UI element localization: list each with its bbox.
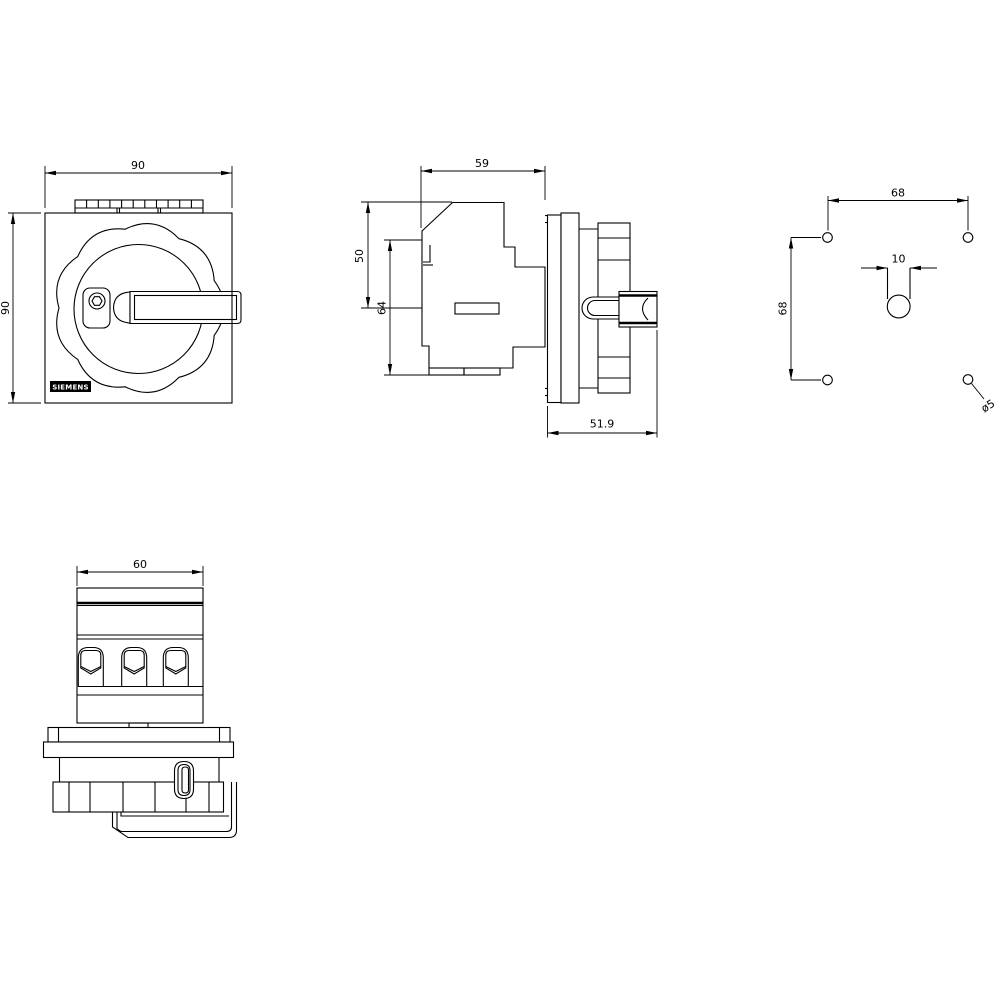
front-height-dimension: 90: [0, 213, 41, 403]
side-foot-right: [464, 368, 500, 375]
slot-width-dimension: 10: [861, 253, 937, 271]
side-width-dim-label: 59: [475, 157, 489, 170]
mounting-hole-top-right: [963, 233, 973, 243]
brand-badge: SIEMENS: [50, 381, 91, 392]
mounting-hole-top-left: [823, 233, 833, 243]
hole-diameter-label: ø5: [979, 397, 998, 415]
mounting-plate-thin: [548, 215, 562, 403]
technical-drawing-page: 90 90: [0, 0, 1000, 1000]
flange-plate-upper: [48, 728, 230, 743]
drilling-vertical-dim-label: 68: [777, 302, 790, 316]
bottom-width-dimension: 60: [77, 558, 203, 586]
terminal-strip: [75, 200, 203, 213]
front-view: 90 90: [0, 159, 241, 403]
side-upper-dim-label: 50: [353, 249, 366, 263]
side-body-outline: [422, 203, 545, 369]
center-tab: [129, 723, 148, 728]
contact-block: [77, 588, 203, 723]
padlock-shackle: [175, 762, 194, 799]
drilling-horizontal-dim-label: 68: [891, 187, 905, 200]
hole-diameter-callout: ø5: [972, 384, 998, 416]
drilling-horizontal-dimension: 68: [828, 187, 968, 231]
handle-lever: [114, 292, 242, 324]
bottom-view: 60: [44, 558, 237, 838]
mounting-hole-bottom-left: [823, 375, 833, 385]
padlock-eye-side: [582, 297, 619, 319]
knob-neck-bottom: [60, 758, 220, 783]
handle-bar-side: [619, 292, 657, 328]
side-depth-dim-label: 51.9: [590, 418, 615, 431]
flange-plate-lower: [44, 742, 234, 758]
drilling-pattern-view: 68 68 10 ø5: [777, 187, 998, 416]
lock-pad: [83, 288, 110, 328]
brand-logo-text: SIEMENS: [52, 384, 88, 392]
drilling-vertical-dimension: 68: [777, 238, 822, 381]
side-foot-left: [429, 368, 464, 375]
side-view: 59 50 64: [353, 157, 657, 438]
dimension-drawing: 90 90: [0, 0, 1000, 1000]
mounting-plate-tall: [561, 213, 579, 403]
bottom-width-dim-label: 60: [133, 558, 147, 571]
side-total-dim-label: 64: [376, 301, 389, 315]
front-width-dim-label: 90: [131, 159, 145, 172]
front-height-dim-label: 90: [0, 301, 12, 315]
slot-width-dim-label: 10: [892, 253, 906, 266]
knob-bottom: [53, 782, 224, 812]
mounting-hole-bottom-right: [963, 375, 973, 385]
shaft-slot: [887, 268, 910, 318]
